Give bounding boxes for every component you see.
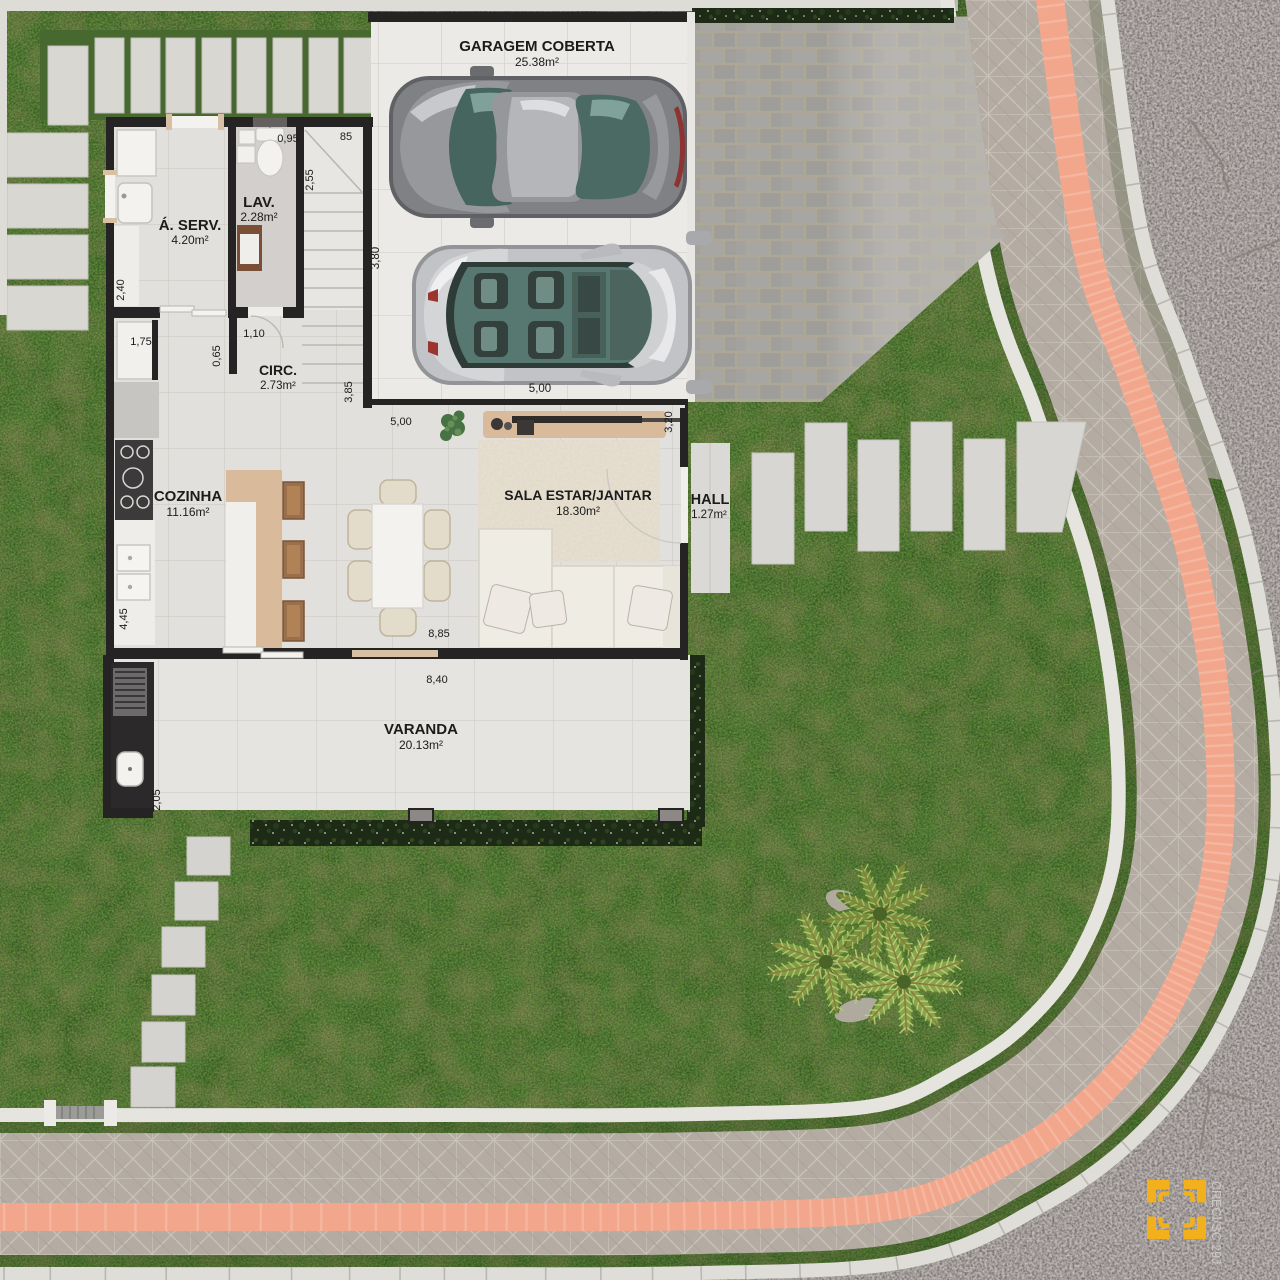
svg-text:2,05: 2,05 (151, 789, 163, 810)
svg-text:GARAGEM COBERTA: GARAGEM COBERTA (459, 38, 615, 55)
svg-text:Á. SERV.: Á. SERV. (159, 217, 222, 234)
svg-text:LAV.: LAV. (243, 194, 275, 211)
svg-text:1,10: 1,10 (243, 328, 264, 340)
svg-text:5,00: 5,00 (390, 416, 411, 428)
svg-text:CRECI/SC 29J: CRECI/SC 29J (1209, 1181, 1223, 1264)
svg-text:2.73m²: 2.73m² (260, 380, 296, 392)
svg-text:11.16m²: 11.16m² (166, 505, 209, 519)
svg-text:3,20: 3,20 (663, 411, 675, 432)
svg-text:0,65: 0,65 (211, 345, 223, 366)
svg-text:VARANDA: VARANDA (384, 721, 458, 738)
svg-text:1,75: 1,75 (130, 336, 151, 348)
svg-text:2,55: 2,55 (304, 169, 316, 190)
svg-text:2.28m²: 2.28m² (240, 210, 277, 224)
svg-text:8,85: 8,85 (428, 628, 449, 640)
svg-text:5,00: 5,00 (529, 383, 551, 395)
svg-text:4.20m²: 4.20m² (171, 233, 208, 247)
svg-text:85: 85 (340, 131, 352, 143)
svg-text:HALL: HALL (691, 492, 730, 508)
svg-text:1.27m²: 1.27m² (691, 509, 727, 521)
svg-text:18.30m²: 18.30m² (556, 504, 600, 518)
svg-text:0,95: 0,95 (277, 133, 298, 145)
svg-text:20.13m²: 20.13m² (399, 738, 443, 752)
svg-text:3,85: 3,85 (343, 381, 355, 402)
svg-text:SALA ESTAR/JANTAR: SALA ESTAR/JANTAR (504, 487, 652, 503)
svg-text:COZINHA: COZINHA (154, 488, 222, 505)
svg-text:8,40: 8,40 (426, 674, 447, 686)
svg-text:2,40: 2,40 (115, 279, 127, 300)
svg-text:25.38m²: 25.38m² (515, 55, 559, 69)
svg-text:4,45: 4,45 (118, 608, 130, 629)
svg-text:CIRC.: CIRC. (259, 362, 297, 378)
